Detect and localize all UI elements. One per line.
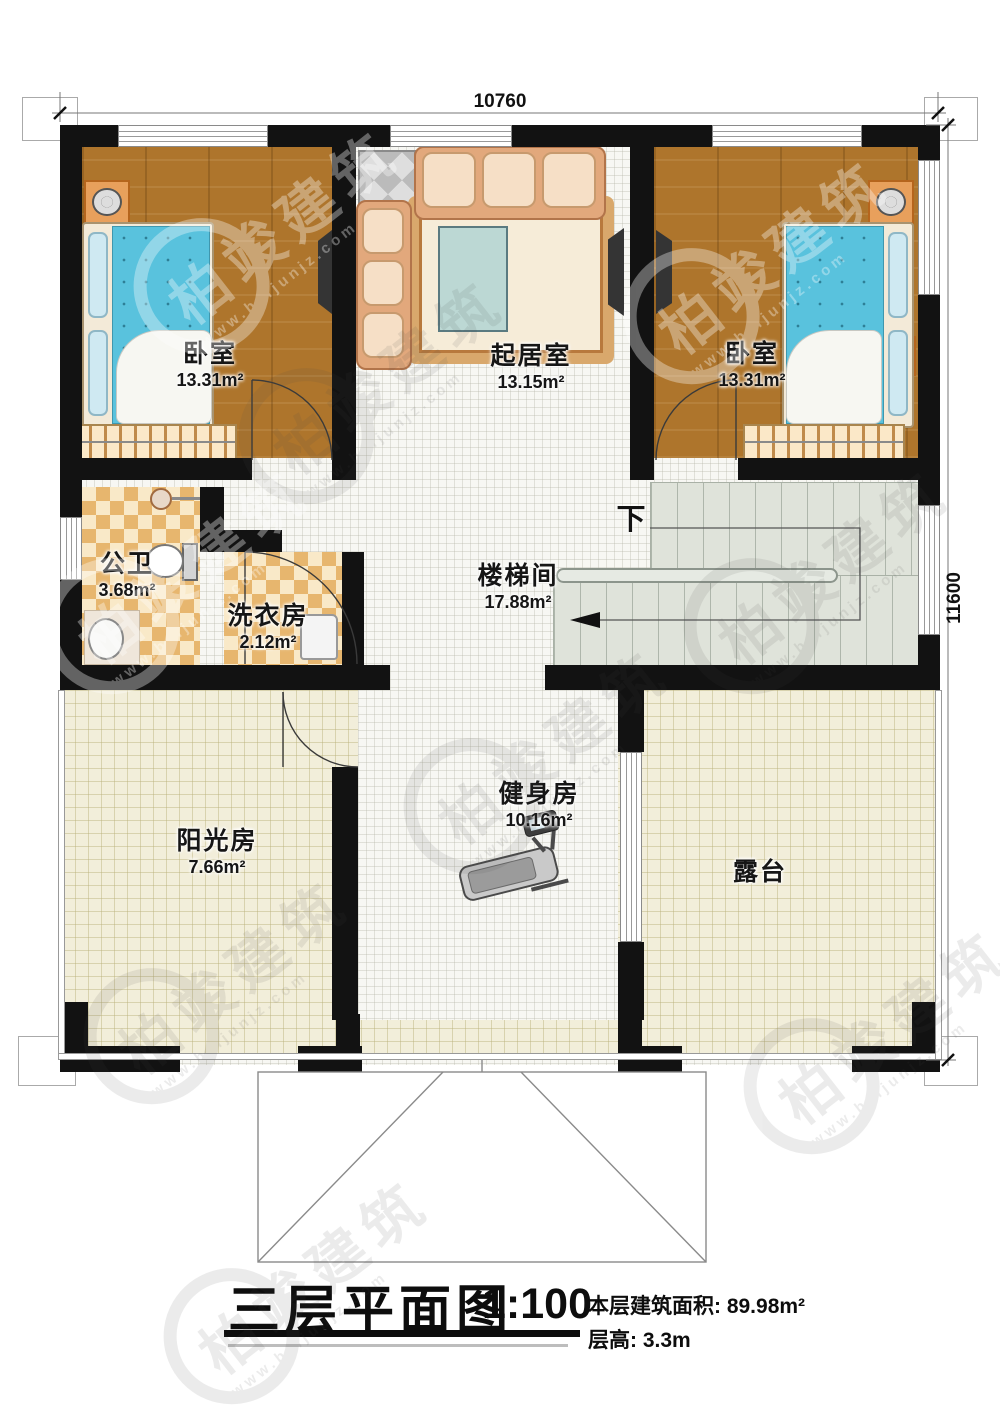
room-label-laundry: 洗衣房 2.12m² xyxy=(227,596,308,653)
dimension-right: 11600 xyxy=(926,118,965,1066)
floor-height-text: 层高: 3.3m xyxy=(588,1324,691,1354)
room-label-bathroom: 公卫 3.68m² xyxy=(98,544,155,601)
room-label-living-room: 起居室 13.15m² xyxy=(490,336,571,393)
door-arc-sunroom xyxy=(283,692,358,767)
room-label-gym: 健身房 10.16m² xyxy=(498,774,579,831)
room-label-bedroom-right: 卧室 13.31m² xyxy=(718,334,785,391)
roof-outline xyxy=(258,1060,706,1262)
room-label-bedroom-left: 卧室 13.31m² xyxy=(176,334,243,391)
plan-line-overlay: 10760 11600 xyxy=(0,0,1000,1416)
floor-area-text: 本层建筑面积: 89.98m² xyxy=(588,1290,805,1320)
stair-direction xyxy=(570,528,860,628)
floor-plan-canvas: 10760 11600 卧室 13.31m² 起居室 13.15m² xyxy=(0,0,1000,1416)
room-label-sunroom: 阳光房 7.66m² xyxy=(176,821,257,878)
door-arc-bedroom-right xyxy=(656,380,736,460)
room-label-terrace: 露台 xyxy=(733,852,787,888)
dimension-top-value: 10760 xyxy=(474,91,527,112)
title-underline-light xyxy=(228,1344,568,1347)
title-underline xyxy=(224,1330,580,1337)
dimension-right-value: 11600 xyxy=(944,572,965,624)
door-arc-bedroom-left xyxy=(252,380,332,460)
stair-down-label: 下 xyxy=(616,496,645,538)
dimension-top: 10760 xyxy=(52,91,946,122)
room-label-stairwell: 楼梯间 17.88m² xyxy=(477,556,558,613)
scale-label: 1:100 xyxy=(482,1280,592,1329)
